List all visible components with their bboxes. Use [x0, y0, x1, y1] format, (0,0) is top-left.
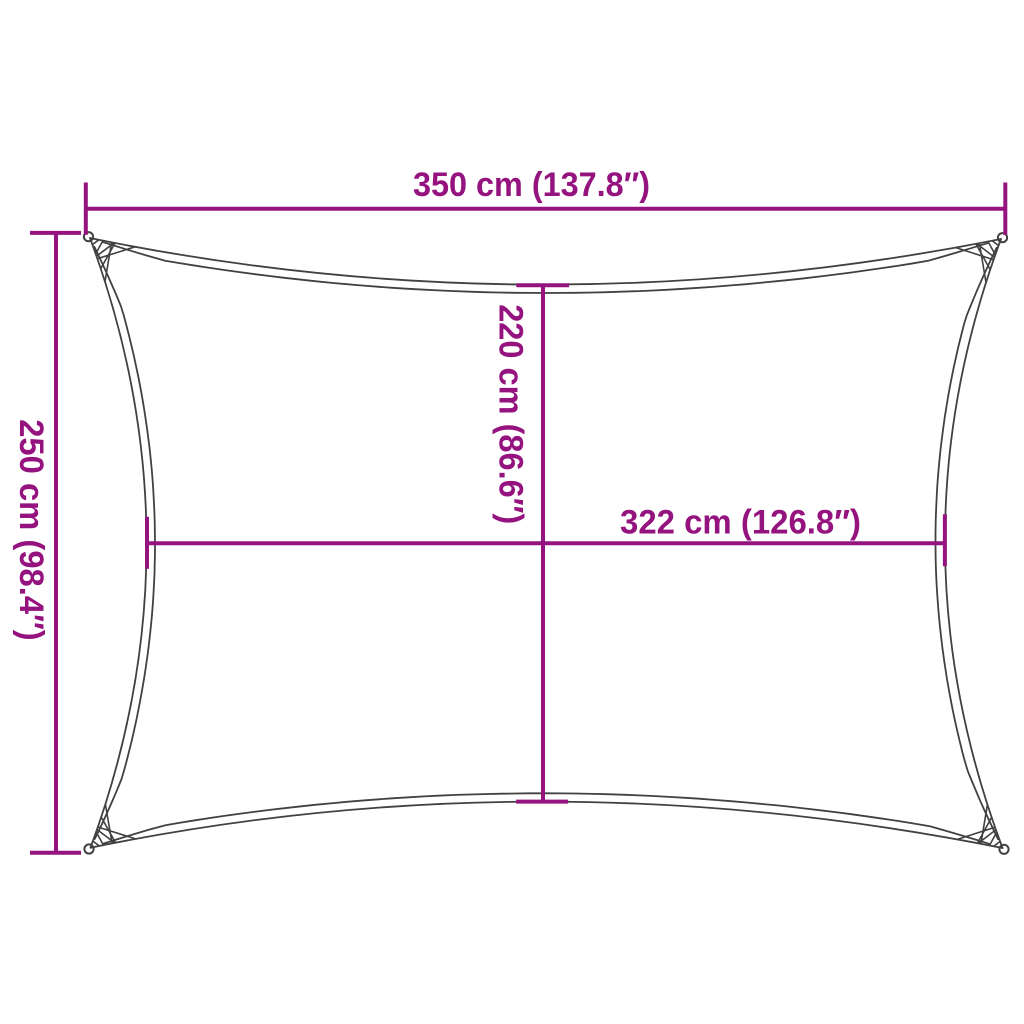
svg-text:350 cm (137.8″): 350 cm (137.8″)	[413, 166, 650, 204]
svg-text:322 cm (126.8″): 322 cm (126.8″)	[620, 503, 861, 541]
svg-text:220 cm (86.6″): 220 cm (86.6″)	[492, 304, 530, 524]
svg-text:250 cm (98.4″): 250 cm (98.4″)	[12, 419, 50, 641]
